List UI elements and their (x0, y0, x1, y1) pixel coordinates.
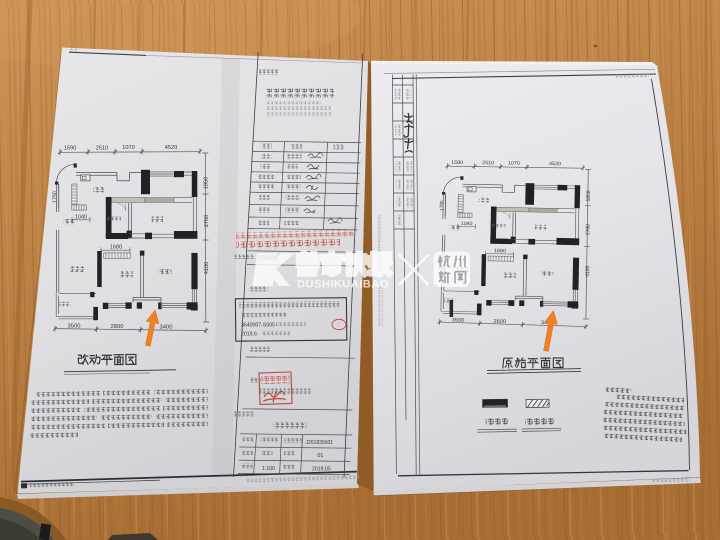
svg-text:1040: 1040 (75, 214, 87, 220)
svg-text:4520: 4520 (165, 145, 177, 151)
svg-text:1590: 1590 (64, 146, 76, 152)
svg-text:3640007-S005: 3640007-S005 (241, 322, 275, 328)
svg-text:J201835001: J201835001 (306, 440, 334, 446)
svg-text:1070: 1070 (122, 145, 134, 151)
svg-text:2510: 2510 (96, 145, 108, 151)
svg-text:DUSHIKUAIBAO: DUSHIKUAIBAO (297, 279, 389, 291)
svg-text:1850: 1850 (204, 177, 210, 189)
svg-text:1680: 1680 (110, 244, 122, 250)
svg-text:2700: 2700 (204, 215, 210, 227)
svg-text:1:100: 1:100 (262, 466, 275, 472)
svg-text:1790: 1790 (53, 191, 59, 203)
svg-text:2800: 2800 (111, 324, 124, 330)
svg-text:2019.05: 2019.05 (312, 467, 331, 473)
svg-text:2019.6: 2019.6 (241, 331, 257, 337)
svg-text:01: 01 (318, 453, 324, 459)
svg-text:3500: 3500 (68, 324, 81, 330)
svg-text:4100: 4100 (204, 262, 210, 274)
svg-text:3400: 3400 (160, 325, 173, 331)
